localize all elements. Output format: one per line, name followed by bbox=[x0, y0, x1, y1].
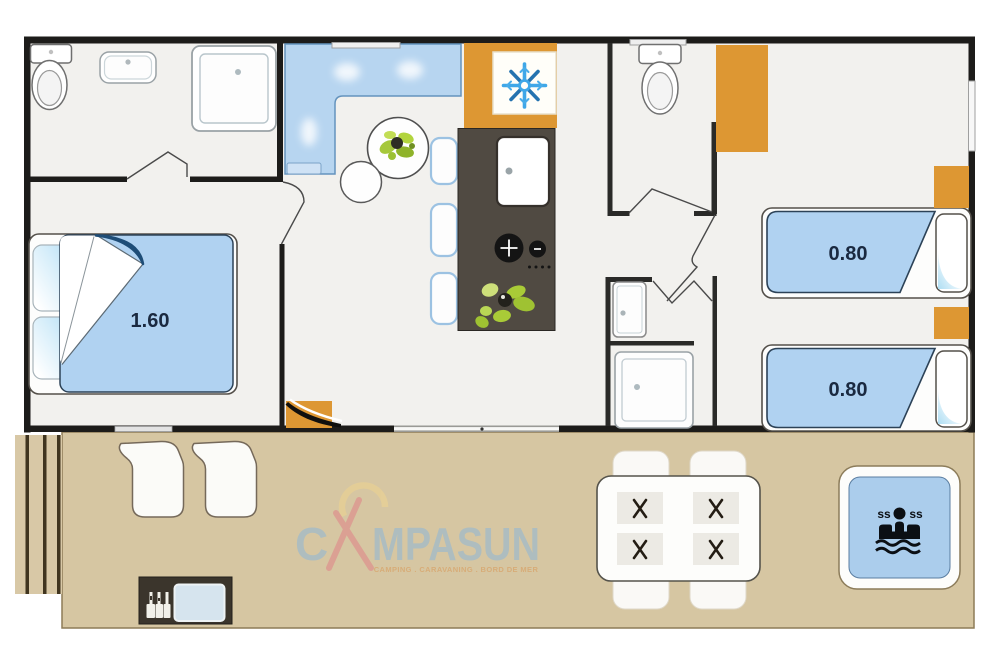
svg-text:CAMPING . CARAVANING . BOR: CAMPING . CARAVANING . BORD DE MER bbox=[374, 565, 539, 574]
svg-text:ss: ss bbox=[909, 507, 923, 521]
svg-text:0.80: 0.80 bbox=[829, 379, 868, 401]
svg-text:C: C bbox=[295, 518, 328, 570]
svg-text:0.80: 0.80 bbox=[829, 243, 868, 265]
svg-text:1.60: 1.60 bbox=[131, 310, 170, 332]
svg-text:MPASUN: MPASUN bbox=[372, 518, 540, 570]
svg-text:ss: ss bbox=[877, 507, 891, 521]
